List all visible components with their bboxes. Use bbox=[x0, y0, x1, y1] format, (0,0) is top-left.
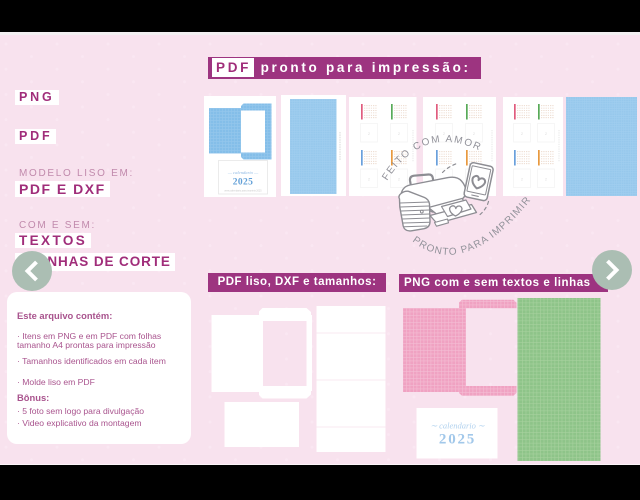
svg-text:www.calendario.para.imprimir.2: www.calendario.para.imprimir.2025 bbox=[224, 190, 262, 193]
svg-text:∼ calendario ∼: ∼ calendario ∼ bbox=[430, 421, 485, 431]
svg-text:— calendario —: — calendario — bbox=[227, 170, 259, 175]
svg-text:2025: 2025 bbox=[233, 178, 254, 188]
svg-text:2025: 2025 bbox=[439, 432, 476, 448]
